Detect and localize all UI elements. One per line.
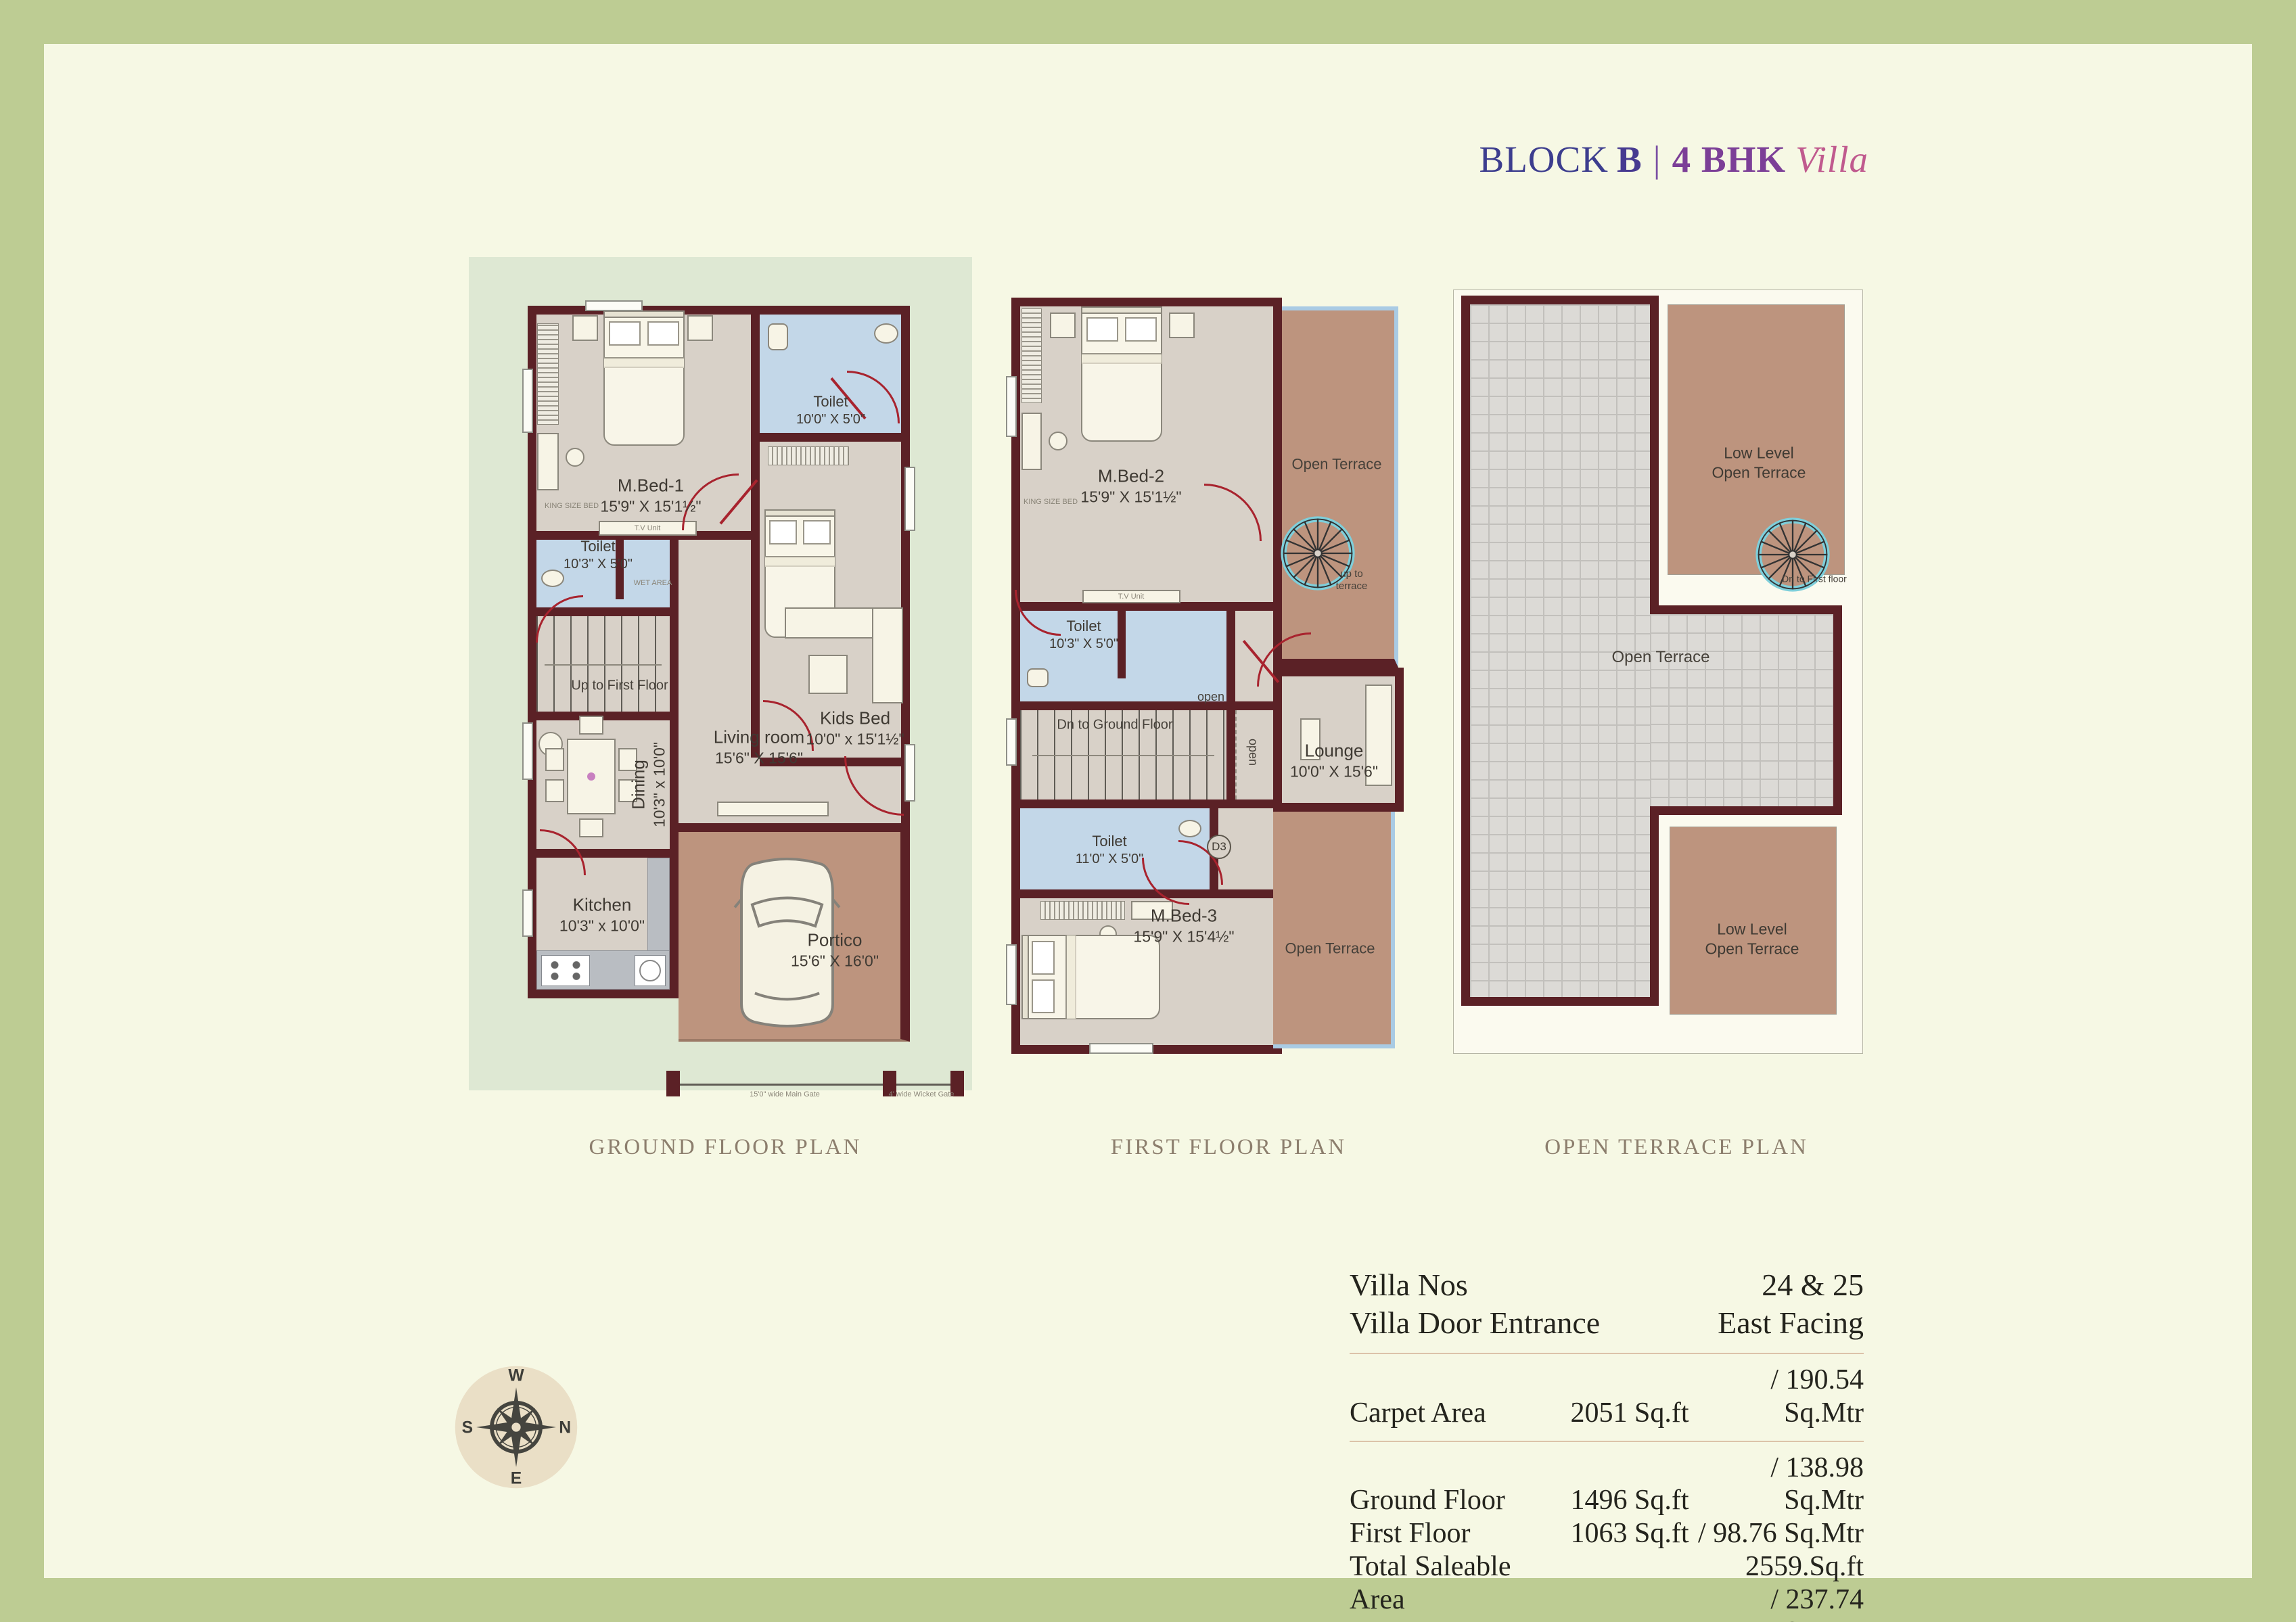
wc-icon [768, 323, 788, 350]
desk-icon [1021, 413, 1042, 470]
caption-ground-floor: GROUND FLOOR PLAN [589, 1135, 861, 1160]
label-toilet-mid: Toilet 10'3" X 5'0" [564, 537, 633, 573]
window-icon [522, 722, 533, 780]
row-value-sqft: 2051 Sq.ft [1561, 1397, 1689, 1430]
tv-unit-tag: T.V Unit [635, 524, 661, 532]
compass-south: S [462, 1419, 473, 1437]
window-icon [904, 744, 915, 802]
side-table [687, 315, 713, 341]
row-label: Villa Nos [1350, 1266, 1468, 1304]
side-table [1050, 312, 1076, 338]
first-open-terrace-bottom [1273, 812, 1395, 1048]
page-title: BLOCKB|4 BHKVilla [1421, 138, 1868, 181]
label-toilet-top: Toilet 10'0" X 5'0" [796, 392, 865, 428]
king-size-bed-tag: KING SIZE BED [1024, 498, 1078, 506]
main-gate-tag: 15'0" wide Main Gate [750, 1090, 820, 1098]
wet-area-tag: WET AREA [634, 579, 672, 587]
dresser-icon [537, 433, 559, 490]
villa-details-table: Villa Nos 24 & 25 Villa Door Entrance Ea… [1350, 1266, 1864, 1622]
label-portico: Portico 15'6" X 16'0" [791, 929, 879, 970]
table-row: Villa Door Entrance East Facing [1350, 1304, 1864, 1342]
label-dining: Dining 10'3" x 10'0" [627, 742, 668, 827]
wash-basin-icon [1178, 820, 1201, 837]
label-living: Living room 15'6" X 15'6" [714, 726, 804, 767]
wash-basin-icon [874, 323, 898, 344]
wardrobe-icon [537, 323, 559, 425]
label-toilet2: Toilet 11'0" X 5'0" [1076, 832, 1143, 868]
row-value-sqft: 1496 Sq.ft [1561, 1484, 1689, 1517]
label-open-vertical: open [1245, 739, 1261, 766]
door-tag-d3: D3 [1207, 835, 1231, 859]
row-label: Ground Floor [1350, 1484, 1505, 1517]
label-up-to-terrace: up to terrace [1325, 568, 1379, 593]
king-size-bed-tag: KING SIZE BED [545, 502, 599, 510]
table-row: Villa Nos 24 & 25 [1350, 1266, 1864, 1304]
title-bhk: 4 BHK [1672, 139, 1787, 180]
wc-icon [1027, 668, 1049, 687]
table-row: Carpet Area 2051 Sq.ft / 190.54 Sq.Mtr [1350, 1364, 1864, 1429]
compass-north: N [559, 1419, 571, 1437]
brochure-page: BLOCKB|4 BHKVilla KING SIZE BED T.V [0, 0, 2296, 1622]
label-stairs-dn: Dn to Ground Floor [1057, 717, 1172, 734]
window-icon [1006, 718, 1017, 766]
title-block: BLOCK [1479, 139, 1609, 180]
chair-icon [1049, 432, 1067, 450]
label-dn-to-first: Dn to First floor [1779, 574, 1850, 585]
sink-icon [635, 955, 666, 986]
tv-unit [717, 802, 829, 816]
label-open-terrace-bottom: Open Terrace [1285, 939, 1375, 958]
row-value-sqft: 1063 Sq.ft [1561, 1517, 1689, 1550]
row-value-sqmtr: / 237.74 Sq.Mtr [1696, 1583, 1864, 1622]
table-divider [1350, 1441, 1864, 1442]
label-lounge: Lounge 10'0" X 15'6" [1290, 739, 1378, 781]
label-toilet1: Toilet 10'3" X 5'0" [1049, 617, 1118, 653]
window-icon [585, 300, 643, 311]
title-separator: | [1653, 139, 1661, 180]
main-gate-line [670, 1084, 964, 1086]
double-bed-icon [1025, 935, 1160, 1019]
wardrobe-icon [1021, 308, 1042, 403]
row-value-sqmtr: / 138.98 Sq.Mtr [1696, 1452, 1864, 1517]
window-icon [522, 889, 533, 937]
sofa-icon [872, 607, 903, 703]
table-divider [1350, 1353, 1864, 1354]
label-terrace-main: Open Terrace [1612, 647, 1710, 668]
tv-unit-tag: T.V Unit [1118, 593, 1145, 601]
wicket-gate-tag: 4' wide Wicket Gate [889, 1090, 955, 1098]
label-kids-bed: Kids Bed 10'0" x 15'1½" [806, 707, 904, 748]
window-icon [1006, 376, 1017, 437]
label-open-terrace-top: Open Terrace [1292, 455, 1382, 473]
row-value: East Facing [1718, 1304, 1864, 1342]
title-block-letter: B [1617, 139, 1643, 180]
dining-chair [545, 748, 564, 771]
dining-chair [579, 818, 603, 837]
flower-icon [587, 772, 595, 781]
chair-icon [566, 448, 584, 467]
first-open-terrace-top [1282, 306, 1398, 668]
double-bed-icon [603, 314, 685, 446]
label-mbed3: M.Bed-3 15'9" X 15'4½" [1133, 904, 1234, 946]
gate-post [666, 1071, 680, 1096]
side-table [572, 315, 598, 341]
row-label: Total Saleable Area [1350, 1550, 1567, 1616]
window-icon [1089, 1043, 1153, 1054]
dining-chair [579, 716, 603, 735]
row-label: Villa Door Entrance [1350, 1304, 1600, 1342]
row-label: Carpet Area [1350, 1397, 1486, 1430]
utility-counter [647, 858, 670, 952]
terrace-tiles-arm [1650, 605, 1842, 815]
stove-icon [541, 955, 590, 986]
label-mbed1: M.Bed-1 15'9" X 15'1½" [600, 474, 701, 515]
open-boundary [1235, 710, 1237, 800]
window-icon [522, 369, 533, 433]
table-row: Ground Floor 1496 Sq.ft / 138.98 Sq.Mtr [1350, 1452, 1864, 1517]
wardrobe-icon [768, 446, 849, 465]
double-bed-icon [1081, 310, 1162, 442]
caption-open-terrace: OPEN TERRACE PLAN [1544, 1135, 1808, 1160]
row-value: 24 & 25 [1762, 1266, 1864, 1304]
wall-segment [1118, 611, 1126, 678]
label-stairs-up: Up to First Floor [571, 678, 668, 695]
label-kitchen: Kitchen 10'3" x 10'0" [559, 894, 645, 935]
compass-west: W [508, 1367, 524, 1385]
label-open: open [1197, 689, 1224, 705]
window-icon [1006, 944, 1017, 1005]
label-low-level-top: Low Level Open Terrace [1712, 443, 1806, 482]
coffee-table [808, 655, 848, 694]
window-icon [904, 467, 915, 531]
caption-first-floor: FIRST FLOOR PLAN [1111, 1135, 1346, 1160]
label-mbed2: M.Bed-2 15'9" X 15'1½" [1080, 465, 1181, 506]
wc-icon [541, 570, 564, 587]
compass-east: E [511, 1470, 522, 1488]
table-row: First Floor 1063 Sq.ft / 98.76 Sq.Mtr [1350, 1517, 1864, 1550]
table-row: Total Saleable Area 2559.Sq.ft / 237.74 … [1350, 1550, 1864, 1622]
row-value-sqft: 2559.Sq.ft [1735, 1550, 1864, 1583]
title-villa: Villa [1795, 139, 1868, 180]
wall-segment [751, 315, 760, 758]
side-table [1169, 312, 1195, 338]
label-low-level-bottom: Low Level Open Terrace [1705, 919, 1799, 958]
row-value-sqmtr: / 98.76 Sq.Mtr [1696, 1517, 1864, 1550]
row-value-sqmtr: / 190.54 Sq.Mtr [1696, 1364, 1864, 1429]
compass-rose-icon: W N E S [452, 1363, 580, 1491]
row-label: First Floor [1350, 1517, 1471, 1550]
dining-chair [545, 779, 564, 802]
wardrobe-icon [1040, 901, 1125, 920]
